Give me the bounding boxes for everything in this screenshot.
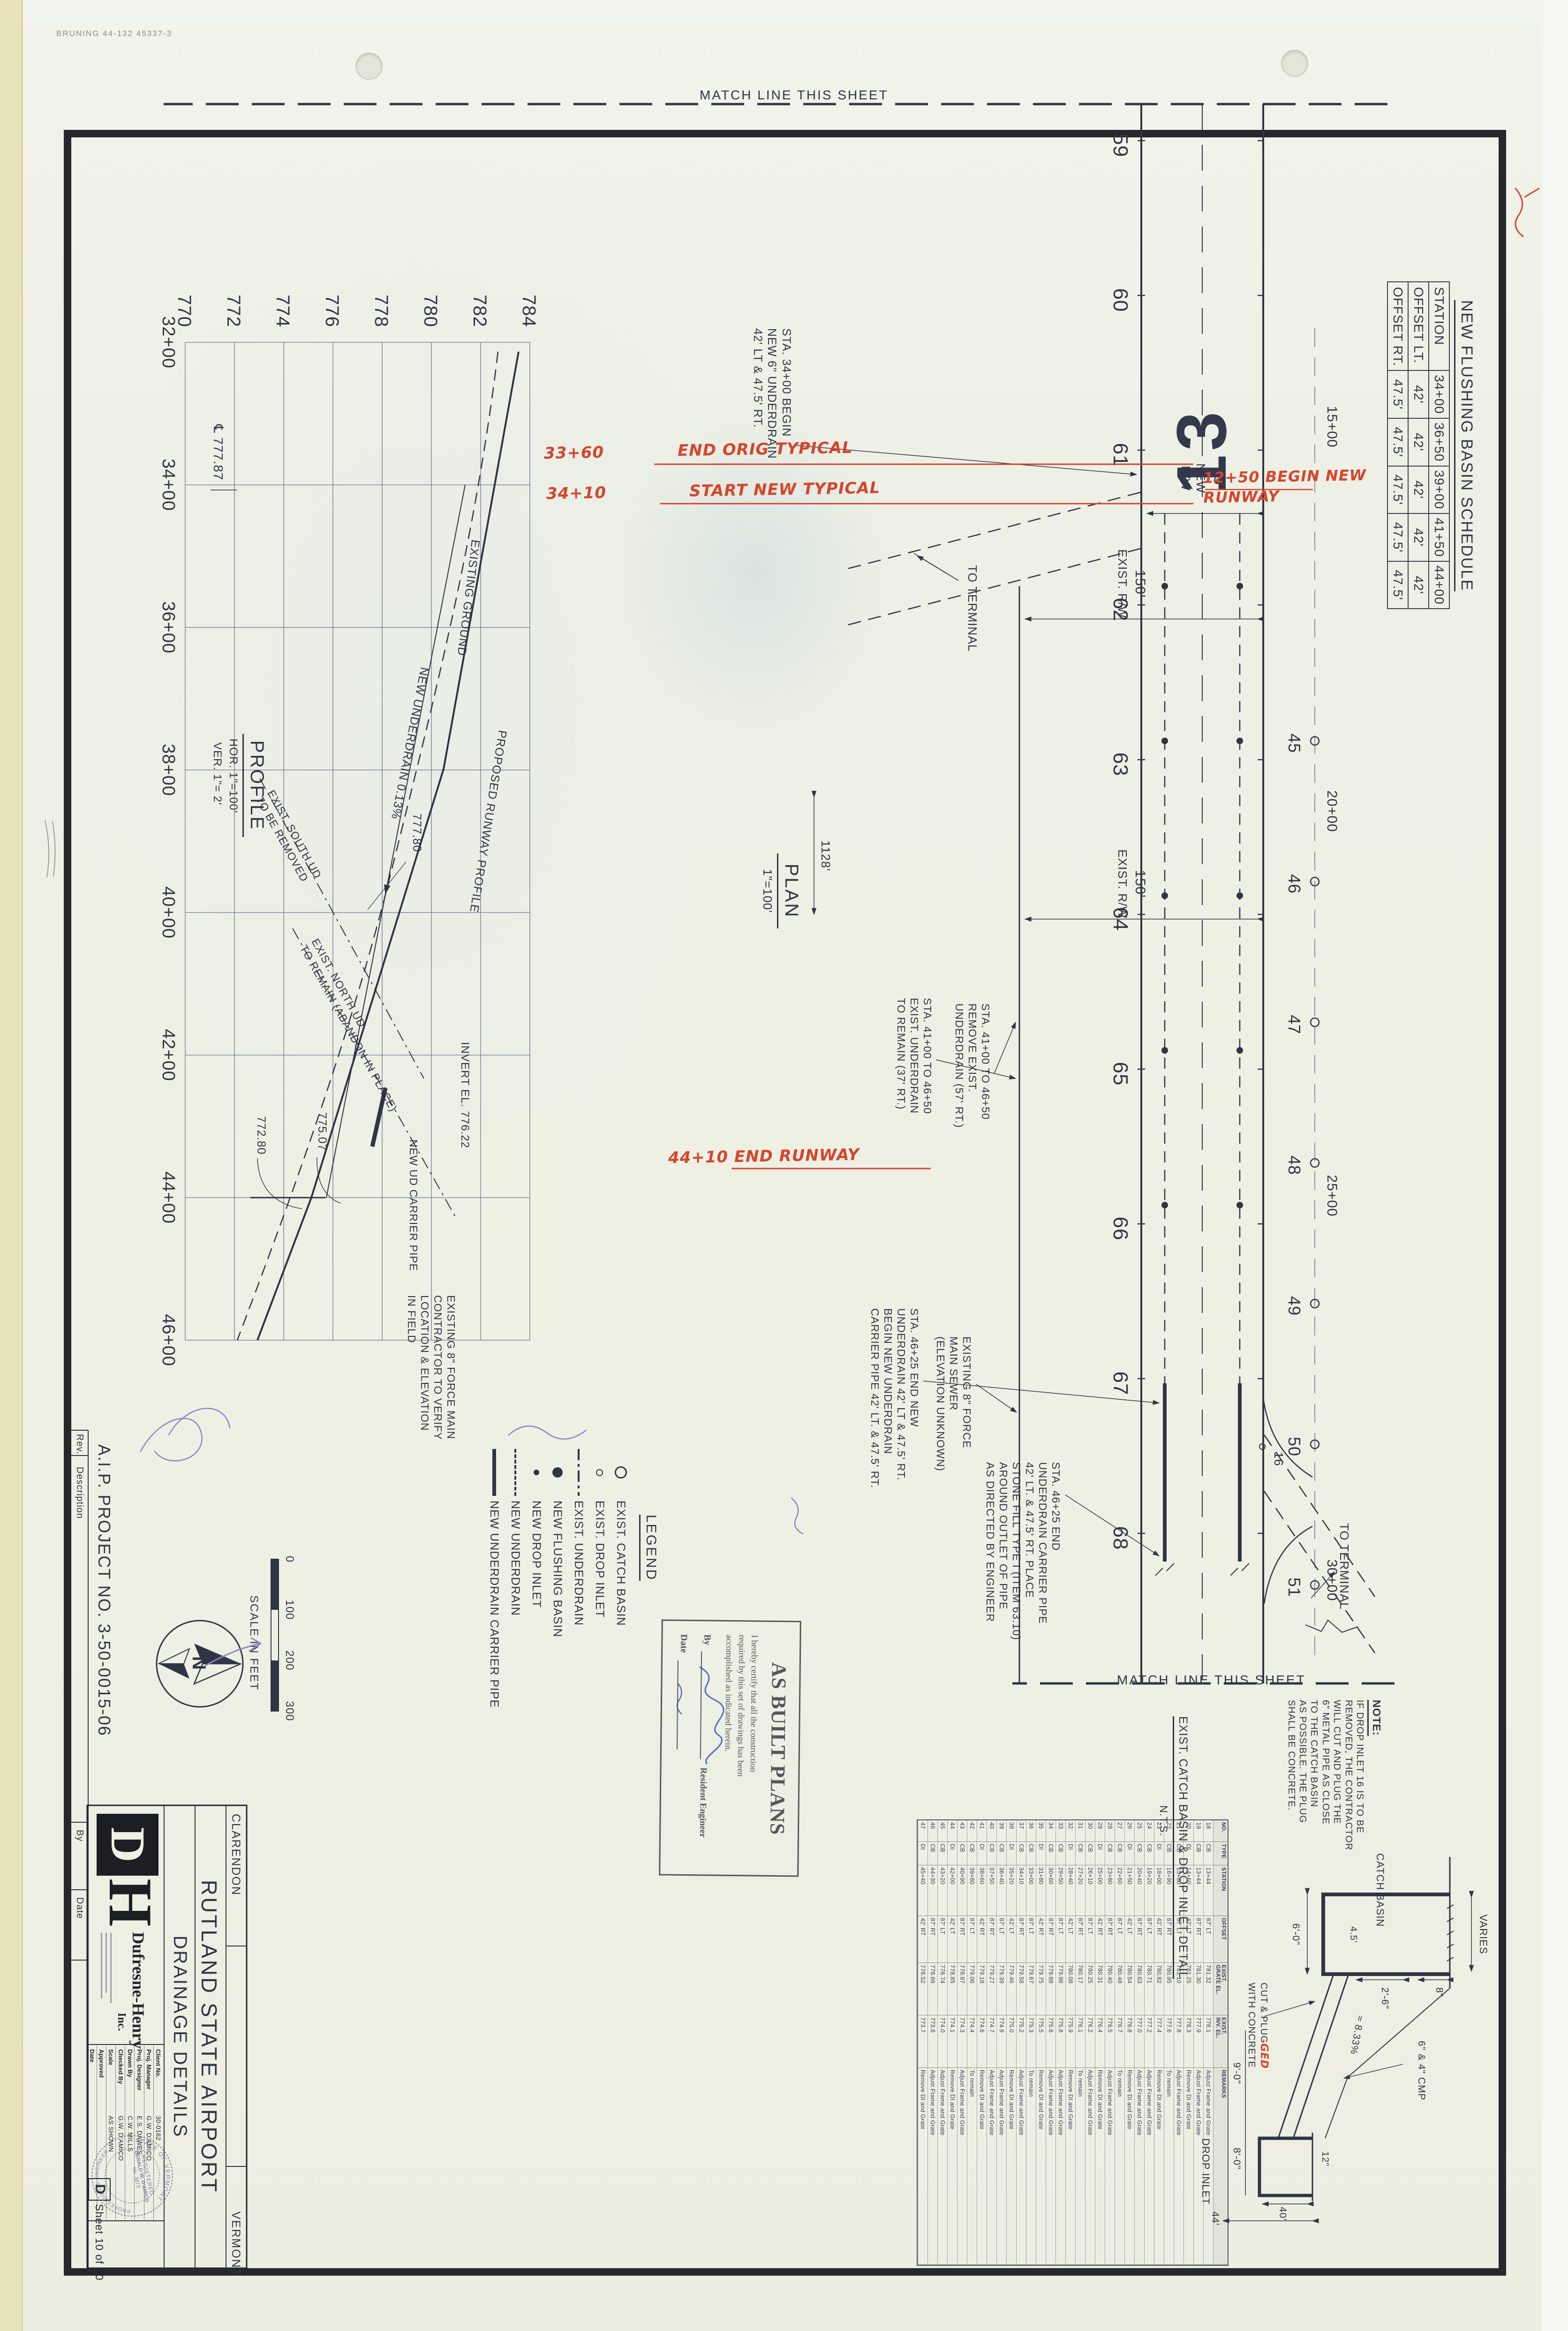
punch-hole-left [355,53,383,80]
red-note-33-60-text: END ORIG TYPICAL [678,438,853,460]
red-note-33-60-sta: 33+60 [544,443,604,463]
scanned-drawing-sheet: STATE OF VERMONTPROFESSIONAL ENGINEER NE… [0,0,1568,2331]
red-note-34-10-text: START NEW TYPICAL [689,478,881,500]
red-note-34-10-sta: 34+10 [546,483,607,503]
film-margin-text: BRUNING 44-132 45337-3 [56,29,172,39]
red-note-begin-runway: 12+50 BEGIN NEW RUNWAY [1203,466,1367,507]
annotation-linework [0,0,1568,2331]
match-line-label-top: MATCH LINE THIS SHEET [700,87,889,103]
annotation-overlay: BRUNING 44-132 45337-3 MATCH LINE THIS S… [0,0,1568,2331]
punch-hole-right [1281,50,1308,77]
red-note-end-runway: 44+10 END RUNWAY [668,1145,860,1167]
match-line-label-bottom: MATCH LINE THIS SHEET [1117,1672,1306,1688]
